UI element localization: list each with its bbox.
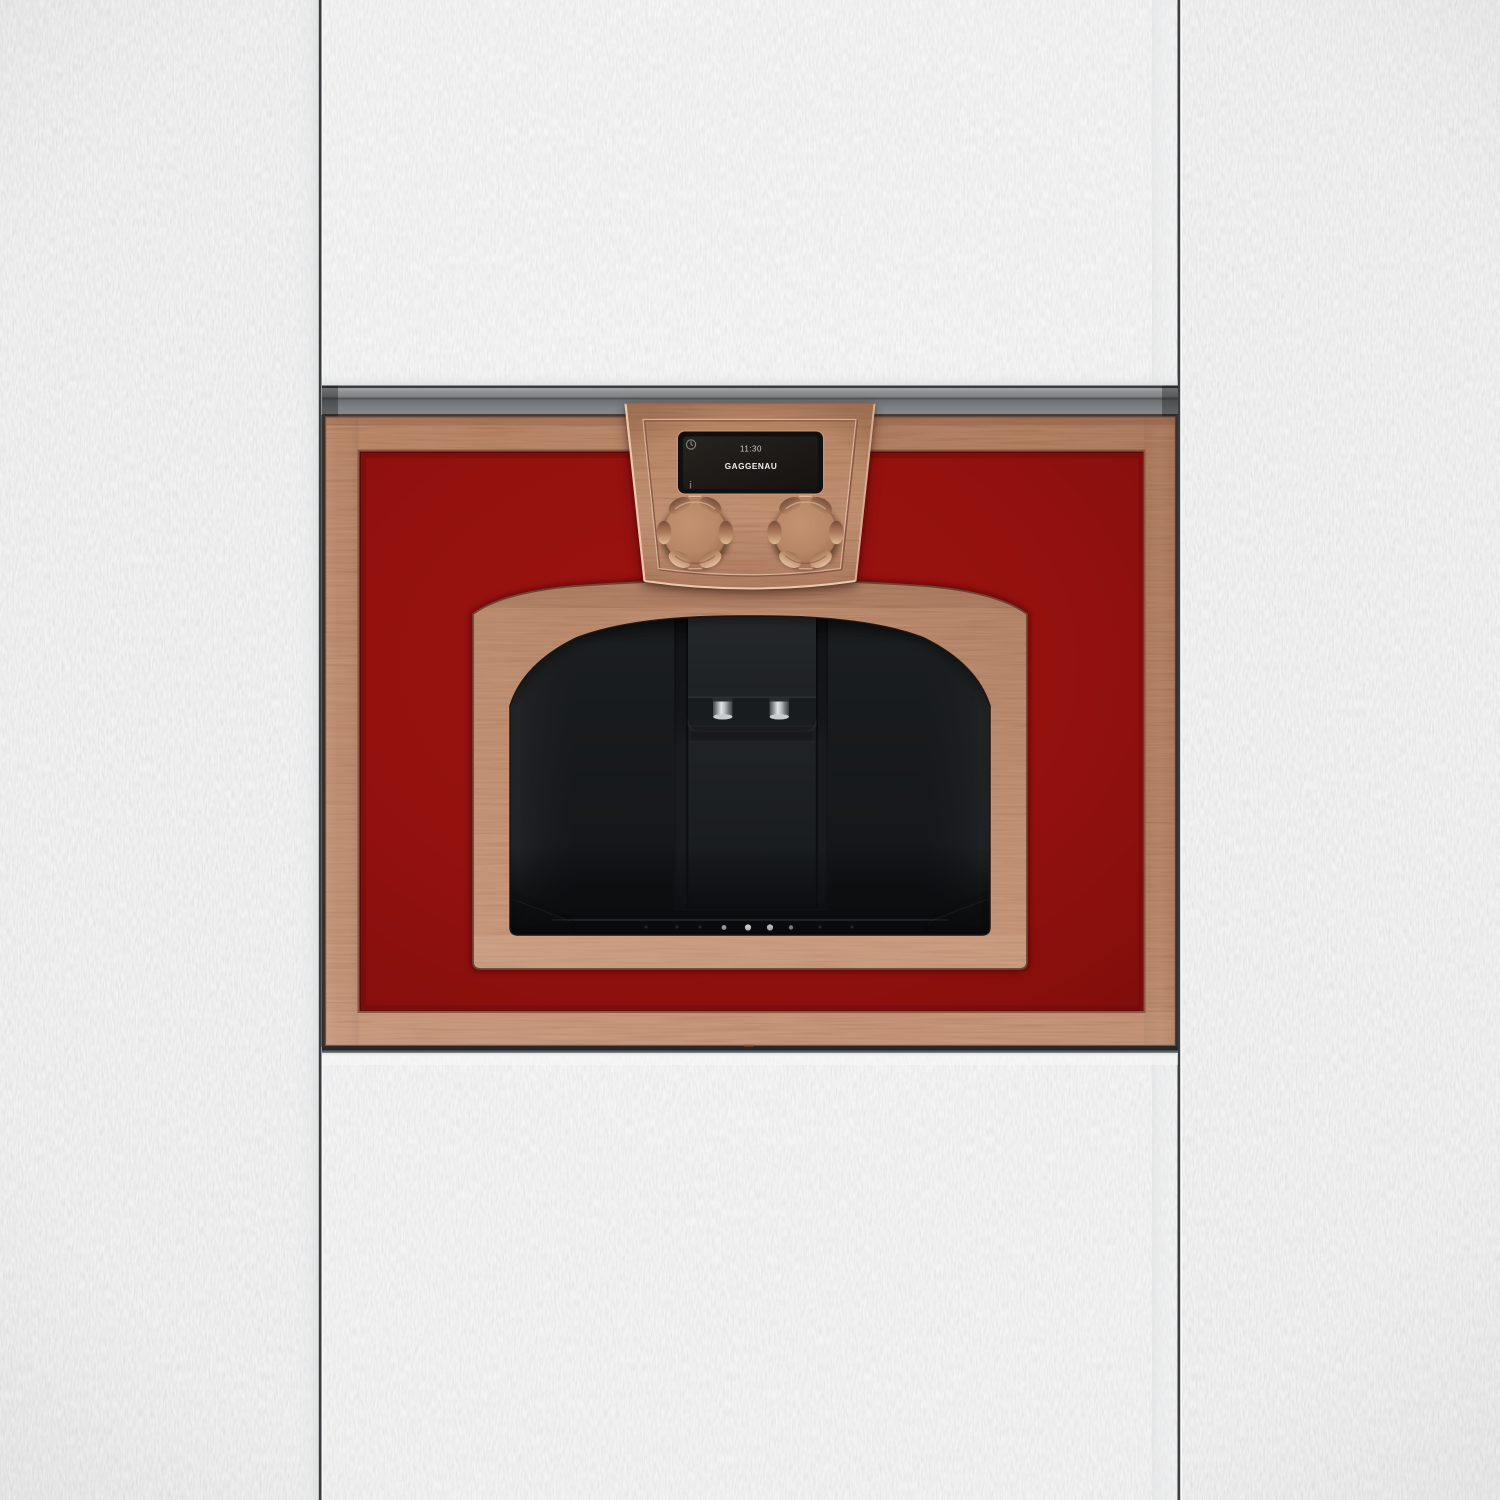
svg-text:GAGGENAU: GAGGENAU xyxy=(725,462,778,471)
svg-text:i: i xyxy=(689,481,692,492)
svg-text:11:30: 11:30 xyxy=(740,445,762,454)
